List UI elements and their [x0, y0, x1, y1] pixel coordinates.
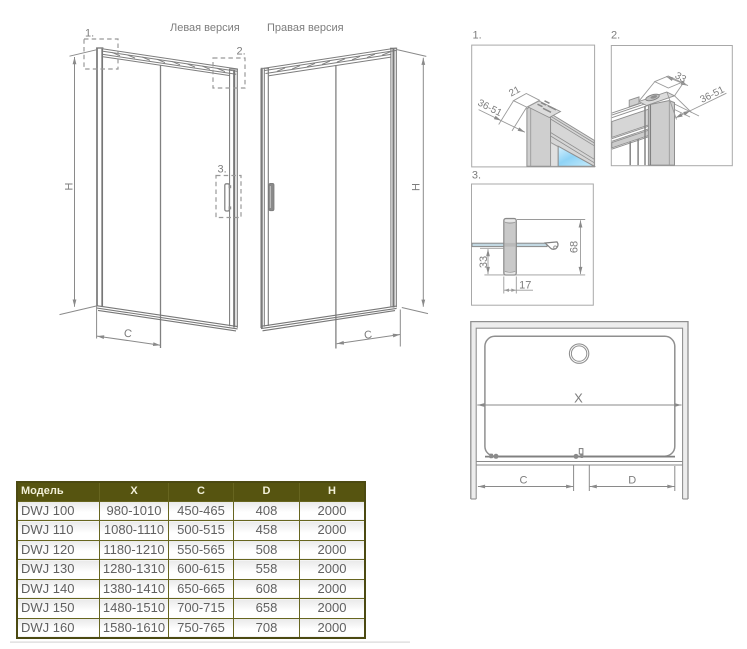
svg-text:68: 68: [569, 241, 581, 253]
svg-text:C: C: [363, 329, 373, 342]
svg-text:C: C: [123, 327, 133, 340]
svg-text:X: X: [574, 391, 583, 406]
svg-text:H: H: [411, 183, 423, 191]
svg-text:Правая версия: Правая версия: [267, 22, 344, 34]
svg-text:1.: 1.: [85, 28, 94, 40]
svg-text:2.: 2.: [237, 46, 246, 58]
svg-text:Левая версия: Левая версия: [170, 22, 240, 34]
svg-text:33: 33: [478, 256, 490, 268]
svg-text:3.: 3.: [472, 170, 481, 182]
svg-text:17: 17: [519, 280, 531, 292]
svg-text:H: H: [64, 182, 76, 190]
svg-text:2.: 2.: [611, 30, 620, 42]
svg-text:3.: 3.: [218, 164, 227, 176]
svg-text:1.: 1.: [473, 30, 482, 42]
svg-text:C: C: [520, 475, 528, 487]
svg-text:D: D: [628, 475, 636, 487]
